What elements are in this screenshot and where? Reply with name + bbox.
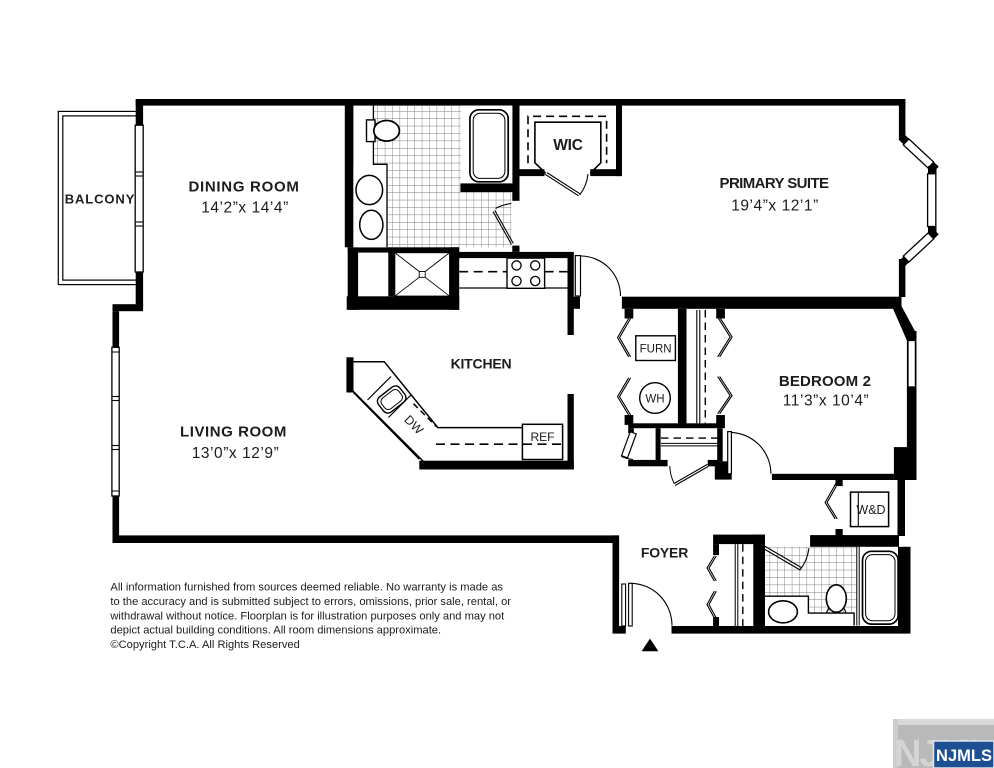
svg-text:KITCHEN: KITCHEN [451,356,512,372]
svg-text:WH: WH [645,394,664,406]
svg-text:©Copyright T.C.A. All Rights R: ©Copyright T.C.A. All Rights Reserved [110,639,299,651]
svg-text:DINING ROOM: DINING ROOM [188,179,299,196]
svg-text:PRIMARY SUITE: PRIMARY SUITE [720,175,829,192]
svg-text:All information furnished from: All information furnished from sources d… [110,582,503,594]
svg-text:FOYER: FOYER [641,544,688,560]
svg-text:13’0”x 12’9”: 13’0”x 12’9” [192,445,280,462]
svg-text:REF: REF [531,430,555,444]
svg-text:depict actual building conditi: depict actual building conditions. All r… [110,625,441,637]
svg-text:LIVING ROOM: LIVING ROOM [180,424,287,441]
svg-text:W&D: W&D [856,503,885,517]
svg-text:BALCONY: BALCONY [65,191,136,206]
svg-text:11’3”x 10’4”: 11’3”x 10’4” [783,393,869,410]
svg-text:19’4”x 12’1”: 19’4”x 12’1” [731,198,819,215]
svg-text:NJMLS: NJMLS [936,747,992,765]
svg-text:FURN: FURN [640,344,672,356]
svg-text:BEDROOM 2: BEDROOM 2 [779,373,871,390]
svg-text:WIC: WIC [553,137,583,154]
svg-text:14’2”x 14’4”: 14’2”x 14’4” [201,200,289,217]
svg-text:withdrawal without notice. Flo: withdrawal without notice. Floorplan is … [109,610,505,622]
svg-text:to the accuracy and is submitt: to the accuracy and is submitted subject… [110,596,511,608]
